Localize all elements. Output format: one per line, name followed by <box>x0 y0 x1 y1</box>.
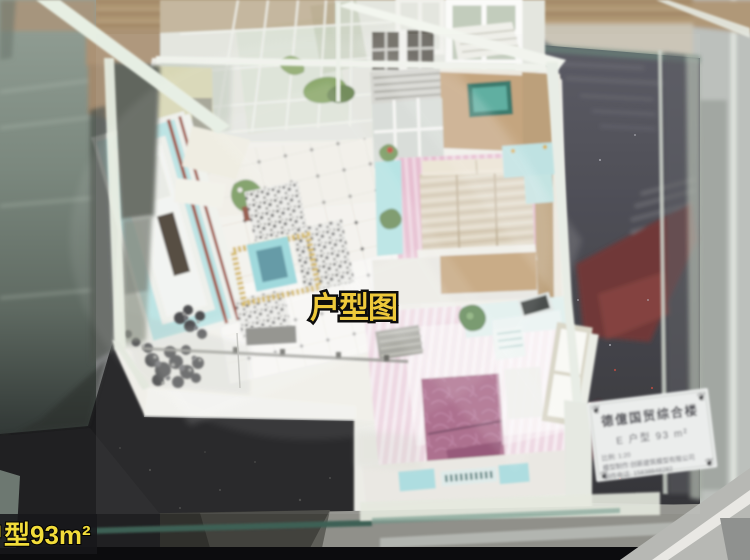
svg-text:❦: ❦ <box>704 457 715 470</box>
svg-text:户型图: 户型图 <box>310 292 397 325</box>
svg-text:户型93m²: 户型93m² <box>0 520 91 550</box>
svg-text:❦: ❦ <box>696 391 707 404</box>
